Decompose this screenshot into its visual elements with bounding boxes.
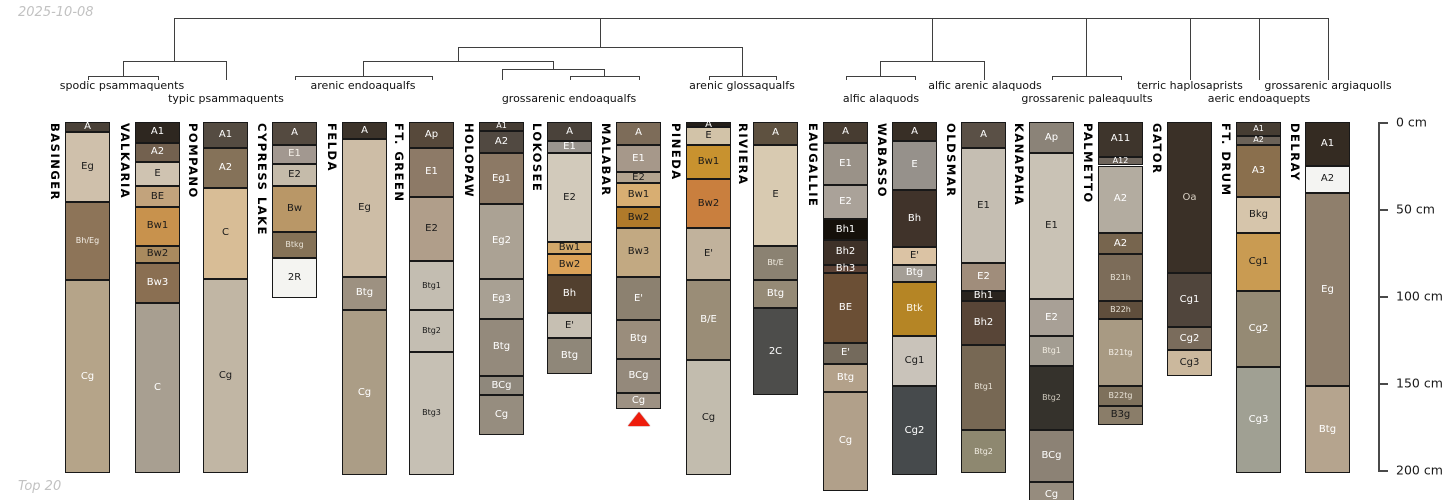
horizon-block: E' [616, 277, 661, 321]
horizon-label: E' [634, 295, 643, 303]
horizon-block: Btg2 [961, 430, 1006, 474]
horizon-label: E [772, 191, 778, 199]
horizon-label: BE [839, 304, 852, 312]
series-label-pineda: PINEDA [669, 123, 683, 181]
horizon-label: Eg2 [492, 237, 511, 245]
dendrogram-v-line [174, 18, 175, 61]
horizon-label: Ap [1045, 134, 1058, 142]
dendrogram-v-line [458, 47, 459, 61]
horizon-label: E2 [425, 225, 438, 233]
horizon-label: Btg [767, 290, 784, 298]
horizon-block: Cg [1029, 482, 1074, 500]
horizon-block: Bh2 [961, 301, 1006, 345]
horizon-block: Btg [547, 338, 592, 375]
dendrogram-v-line [1052, 76, 1053, 80]
series-label-gator: GATOR [1150, 123, 1164, 174]
horizon-block: E2 [547, 153, 592, 242]
horizon-block: Bh1 [961, 291, 1006, 301]
horizon-label: Btg2 [1042, 394, 1061, 402]
horizon-label: Bh1 [974, 292, 994, 300]
horizon-label: A [635, 129, 642, 137]
horizon-label: Bh2 [974, 319, 994, 327]
horizon-label: Cg3 [1180, 359, 1200, 367]
cluster-label: arenic glossaqualfs [689, 79, 795, 92]
horizon-label: Cg1 [905, 357, 925, 365]
horizon-label: E1 [632, 155, 645, 163]
horizon-block: Bt/E [753, 246, 798, 281]
dendrogram-h-line [880, 61, 984, 62]
date-label: 2025-10-08 [18, 5, 94, 20]
series-label-riviera: RIVIERA [736, 123, 750, 185]
dendrogram-h-line [1052, 76, 1121, 77]
horizon-label: Bw1 [147, 222, 168, 230]
horizon-block: E' [686, 228, 731, 280]
horizon-label: E2 [977, 273, 990, 281]
depth-tick [1378, 383, 1388, 385]
horizon-label: Btg [630, 335, 647, 343]
dendrogram-v-line [226, 61, 227, 80]
horizon-block: Cg2 [892, 386, 937, 475]
horizon-block: E2 [616, 172, 661, 182]
horizon-label: A2 [1114, 240, 1127, 248]
horizon-label: Btk [906, 305, 923, 313]
horizon-label: Bw2 [559, 261, 580, 269]
horizon-block: Btg [823, 364, 868, 392]
horizon-label: A [291, 129, 298, 137]
cluster-label: grossarenic paleaquults [1021, 92, 1152, 105]
horizon-label: Cg [702, 414, 715, 422]
dendrogram-v-line [846, 76, 847, 80]
cluster-label: typic psammaquents [168, 92, 284, 105]
dendrogram-v-line [600, 18, 601, 47]
horizon-block: A [616, 122, 661, 145]
horizon-label: Bw1 [628, 191, 649, 199]
horizon-label: A1 [496, 122, 507, 130]
horizon-label: Bw1 [698, 158, 719, 166]
horizon-block: Eg1 [479, 153, 524, 203]
horizon-label: Eg [81, 163, 94, 171]
horizon-label: Bw3 [147, 279, 168, 287]
horizon-block: Cg3 [1167, 350, 1212, 376]
horizon-block: E1 [272, 145, 317, 164]
horizon-block: Bh/Eg [65, 202, 110, 280]
dendrogram-h-line [363, 61, 553, 62]
horizon-block: Bw2 [547, 254, 592, 275]
horizon-block: A2 [1236, 136, 1281, 145]
cluster-label: spodic psammaquents [60, 79, 184, 92]
horizon-label: Cg [495, 411, 508, 419]
horizon-block: BCg [1029, 430, 1074, 482]
depth-tick [1378, 122, 1388, 124]
dendrogram-h-line [295, 76, 432, 77]
horizon-label: B/E [700, 316, 717, 324]
horizon-label: B21tg [1109, 349, 1133, 357]
dendrogram-h-line [570, 76, 639, 77]
horizon-block: Btg2 [409, 310, 454, 352]
cluster-label: arenic endoaqualfs [311, 79, 416, 92]
dendrogram-h-line [502, 69, 605, 70]
horizon-block: Bw1 [135, 207, 180, 245]
horizon-label: A [911, 128, 918, 136]
horizon-label: A [772, 129, 779, 137]
horizon-block: A1 [1305, 122, 1350, 166]
dendrogram-v-line [1121, 76, 1122, 80]
horizon-label: Btg1 [1042, 347, 1061, 355]
dendrogram-h-line [174, 18, 1328, 19]
horizon-label: A3 [1252, 167, 1265, 175]
horizon-label: A [842, 128, 849, 136]
horizon-label: Cg1 [1180, 296, 1200, 304]
dendrogram-v-line [604, 69, 605, 76]
horizon-label: Bw [287, 205, 302, 213]
horizon-label: E [154, 170, 160, 178]
horizon-block: BE [135, 186, 180, 207]
horizon-label: Oa [1183, 194, 1197, 202]
horizon-label: Bw2 [628, 214, 649, 222]
horizon-block: E' [823, 343, 868, 364]
horizon-label: Btg [561, 352, 578, 360]
horizon-label: Cg [839, 437, 852, 445]
horizon-label: Btg3 [422, 409, 441, 417]
horizon-block: Btkg [272, 232, 317, 258]
horizon-block: Btg [753, 280, 798, 308]
horizon-label: Cg2 [905, 427, 925, 435]
horizon-block: A [272, 122, 317, 145]
horizon-block: B/E [686, 280, 731, 360]
horizon-label: Eg [1321, 286, 1334, 294]
horizon-label: Btg [837, 374, 854, 382]
dendrogram-v-line [502, 69, 503, 80]
horizon-block: A [547, 122, 592, 141]
horizon-block: Btg [892, 265, 937, 282]
horizon-block: Btg2 [1029, 366, 1074, 430]
horizon-label: E2 [632, 174, 645, 182]
horizon-label: E [705, 132, 711, 140]
horizon-label: Bw1 [559, 244, 580, 252]
horizon-block: A1 [479, 122, 524, 131]
horizon-block: Bh [547, 275, 592, 313]
horizon-block: Btg3 [409, 352, 454, 476]
horizon-block: Btg [1305, 386, 1350, 473]
dendrogram-v-line [915, 76, 916, 80]
horizon-label: B22tg [1109, 392, 1133, 400]
series-label-kanapaha: KANAPAHA [1012, 123, 1026, 206]
horizon-block: Bw [272, 186, 317, 231]
horizon-label: BCg [628, 372, 648, 380]
horizon-block: A12 [1098, 157, 1143, 166]
horizon-block: A [892, 122, 937, 141]
horizon-block: E1 [616, 145, 661, 173]
horizon-label: BCg [1041, 452, 1061, 460]
horizon-block: Btg [342, 277, 387, 310]
horizon-label: Bh/Eg [76, 237, 99, 245]
depth-tick-label: 100 cm [1396, 289, 1443, 304]
horizon-block: A2 [135, 143, 180, 162]
horizon-block: A2 [1098, 233, 1143, 254]
horizon-block: Cg [686, 360, 731, 475]
horizon-label: E1 [563, 143, 576, 151]
series-label-ft-green: FT. GREEN [392, 123, 406, 202]
dendrogram-v-line [1086, 18, 1087, 76]
horizon-label: A [84, 123, 91, 131]
horizon-label: Bh3 [836, 265, 856, 273]
horizon-block: Bh [892, 190, 937, 247]
horizon-label: Btg [356, 289, 373, 297]
horizon-label: Cg [632, 397, 645, 405]
horizon-block: E2 [409, 197, 454, 261]
horizon-block: Btk [892, 282, 937, 336]
horizon-block: A [961, 122, 1006, 148]
horizon-block: A1 [135, 122, 180, 143]
horizon-block: E [892, 141, 937, 190]
horizon-block: B22tg [1098, 386, 1143, 405]
dendrogram-v-line [742, 47, 743, 76]
horizon-block: A11 [1098, 122, 1143, 157]
soil-profile-chart: 2025-10-08 Top 20 spodic psammaquentstyp… [0, 0, 1450, 500]
horizon-block: A [823, 122, 868, 143]
horizon-label: BCg [491, 382, 511, 390]
horizon-label: Cg [81, 373, 94, 381]
horizon-block: Bw3 [135, 263, 180, 303]
profile-marker-triangle-icon [628, 412, 650, 426]
horizon-label: E [911, 161, 917, 169]
horizon-label: Btg1 [974, 383, 993, 391]
horizon-label: A [980, 131, 987, 139]
horizon-block: E1 [1029, 153, 1074, 299]
series-label-oldsmar: OLDSMAR [944, 123, 958, 198]
dendrogram-v-line [932, 18, 933, 61]
horizon-block: E2 [272, 164, 317, 187]
horizon-label: E' [704, 250, 713, 258]
horizon-block: E1 [409, 148, 454, 197]
horizon-block: Cg1 [1167, 273, 1212, 327]
horizon-block: A [65, 122, 110, 132]
dendrogram-v-line [639, 76, 640, 80]
horizon-block: E [753, 145, 798, 246]
horizon-label: E1 [839, 160, 852, 168]
horizon-label: E2 [288, 171, 301, 179]
horizon-block: Cg [823, 392, 868, 491]
horizon-block: Cg1 [1236, 233, 1281, 290]
horizon-label: E1 [425, 168, 438, 176]
horizon-label: A2 [1253, 136, 1264, 144]
horizon-block: E2 [961, 263, 1006, 291]
horizon-label: Btg2 [422, 327, 441, 335]
series-label-eaugallie: EAUGALLIE [806, 123, 820, 207]
horizon-block: Bh1 [823, 219, 868, 240]
horizon-block: A [342, 122, 387, 139]
dendrogram-h-line [88, 76, 158, 77]
horizon-label: Btg1 [422, 282, 441, 290]
horizon-label: Eg [358, 204, 371, 212]
horizon-label: A2 [1114, 195, 1127, 203]
horizon-label: Btkg [285, 241, 303, 249]
horizon-label: E2 [1045, 314, 1058, 322]
horizon-block: Ap [409, 122, 454, 148]
horizon-label: Bh2 [836, 248, 856, 256]
horizon-block: Cg1 [892, 336, 937, 386]
dendrogram-v-line [1190, 18, 1191, 80]
horizon-block: Bw2 [686, 179, 731, 228]
horizon-block: Bw2 [135, 246, 180, 263]
horizon-label: BE [151, 193, 164, 201]
horizon-block: Bkg [1236, 197, 1281, 234]
horizon-block: Bw2 [616, 207, 661, 228]
horizon-label: E' [910, 252, 919, 260]
horizon-label: E1 [1045, 222, 1058, 230]
horizon-label: E2 [563, 194, 576, 202]
horizon-block: E [686, 127, 731, 144]
cluster-label: grossarenic argiaquolls [1264, 79, 1391, 92]
horizon-block: 2R [272, 258, 317, 298]
cluster-label: grossarenic endoaqualfs [502, 92, 636, 105]
horizon-label: Ap [425, 131, 438, 139]
series-label-lokosee: LOKOSEE [530, 123, 544, 192]
horizon-label: Eg1 [492, 175, 511, 183]
horizon-label: A [566, 128, 573, 136]
horizon-label: A2 [219, 164, 232, 172]
horizon-block: A1 [203, 122, 248, 148]
horizon-block: A2 [1305, 166, 1350, 194]
cluster-label: alfic alaquods [843, 92, 919, 105]
horizon-block: B22h [1098, 301, 1143, 318]
horizon-label: Bt/E [767, 259, 783, 267]
horizon-block: Oa [1167, 122, 1212, 273]
horizon-label: Btg [906, 269, 923, 277]
horizon-label: Cg [1045, 491, 1058, 499]
depth-tick-label: 50 cm [1396, 202, 1435, 217]
series-label-felda: FELDA [325, 123, 339, 172]
horizon-block: Ap [1029, 122, 1074, 153]
horizon-block: A3 [1236, 145, 1281, 197]
horizon-block: Bh3 [823, 265, 868, 274]
horizon-block: 2C [753, 308, 798, 395]
horizon-label: Bh [908, 215, 921, 223]
horizon-label: E' [565, 322, 574, 330]
horizon-label: Bw2 [147, 250, 168, 258]
series-label-valkaria: VALKARIA [118, 123, 132, 199]
horizon-block: Cg2 [1236, 291, 1281, 368]
series-label-holopaw: HOLOPAW [462, 123, 476, 198]
horizon-block: Btg [616, 320, 661, 358]
series-label-wabasso: WABASSO [875, 123, 889, 198]
horizon-block: Eg3 [479, 279, 524, 319]
horizon-block: Btg1 [1029, 336, 1074, 366]
horizon-label: C [222, 229, 229, 237]
horizon-block: Bw1 [547, 242, 592, 254]
horizon-label: 2C [769, 348, 782, 356]
horizon-label: E1 [288, 150, 301, 158]
dendrogram-v-line [1259, 18, 1260, 80]
horizon-label: A [361, 127, 368, 135]
horizon-block: A1 [1236, 122, 1281, 136]
horizon-block: Btg1 [409, 261, 454, 310]
horizon-label: Eg3 [492, 295, 511, 303]
horizon-label: Bh1 [836, 226, 856, 234]
horizon-block: E [135, 162, 180, 186]
horizon-block: E2 [823, 185, 868, 220]
horizon-block: E' [547, 313, 592, 337]
horizon-block: B3g [1098, 406, 1143, 425]
dendrogram-h-line [123, 61, 226, 62]
horizon-label: Cg [358, 389, 371, 397]
horizon-label: Cg2 [1180, 335, 1200, 343]
dendrogram-v-line [432, 76, 433, 80]
horizon-label: Cg [219, 372, 232, 380]
horizon-label: Btg [1319, 426, 1336, 434]
horizon-label: A1 [219, 131, 232, 139]
horizon-block: Cg [342, 310, 387, 475]
cluster-label: alfic arenic alaquods [928, 79, 1042, 92]
horizon-block: Eg [65, 132, 110, 202]
horizon-label: A11 [1111, 135, 1131, 143]
horizon-block: C [203, 188, 248, 278]
dendrogram-h-line [709, 76, 776, 77]
series-label-pompano: POMPANO [186, 123, 200, 199]
horizon-label: B3g [1111, 411, 1131, 419]
dendrogram-v-line [295, 76, 296, 80]
horizon-block: Eg [1305, 193, 1350, 386]
horizon-block: Btg [479, 319, 524, 376]
horizon-block: B21h [1098, 254, 1143, 301]
horizon-block: A2 [1098, 166, 1143, 234]
horizon-block: E2 [1029, 299, 1074, 336]
horizon-block: Cg3 [1236, 367, 1281, 473]
horizon-block: BCg [479, 376, 524, 395]
horizon-block: E1 [961, 148, 1006, 263]
horizon-block: Bh2 [823, 240, 868, 264]
dendrogram-v-line [880, 61, 881, 76]
dendrogram-v-line [123, 61, 124, 76]
dendrogram-h-line [846, 76, 915, 77]
horizon-label: A2 [1321, 175, 1334, 183]
horizon-label: B21h [1110, 274, 1131, 282]
dendrogram-v-line [553, 61, 554, 69]
series-label-basinger: BASINGER [48, 123, 62, 201]
horizon-label: Cg1 [1249, 258, 1269, 266]
series-label-palmetto: PALMETTO [1081, 123, 1095, 204]
horizon-label: E' [841, 349, 850, 357]
horizon-block: Btg1 [961, 345, 1006, 430]
dendrogram-v-line [570, 76, 571, 80]
horizon-block: E' [892, 247, 937, 264]
horizon-label: A2 [151, 148, 164, 156]
horizon-block: Bw1 [616, 183, 661, 207]
horizon-block: Eg [342, 139, 387, 276]
series-label-cypress-lake: CYPRESS LAKE [255, 123, 269, 236]
horizon-block: Cg [479, 395, 524, 435]
footer-label: Top 20 [18, 479, 61, 494]
cluster-label: aeric endoaquepts [1208, 92, 1311, 105]
horizon-block: Cg [616, 393, 661, 409]
horizon-block: Cg2 [1167, 327, 1212, 350]
horizon-label: E2 [839, 198, 852, 206]
horizon-block: A [753, 122, 798, 145]
dendrogram-v-line [363, 61, 364, 76]
horizon-block: E1 [547, 141, 592, 153]
cluster-label: terric haplosaprists [1137, 79, 1243, 92]
horizon-block: C [135, 303, 180, 474]
horizon-block: A2 [479, 131, 524, 154]
series-label-ft-drum: FT. DRUM [1219, 123, 1233, 197]
horizon-block: Eg2 [479, 204, 524, 279]
horizon-label: E1 [977, 202, 990, 210]
horizon-label: Bw2 [698, 200, 719, 208]
horizon-label: Bw3 [628, 248, 649, 256]
horizon-block: BE [823, 273, 868, 343]
horizon-block: Bw1 [686, 145, 731, 180]
horizon-label: Cg3 [1249, 416, 1269, 424]
